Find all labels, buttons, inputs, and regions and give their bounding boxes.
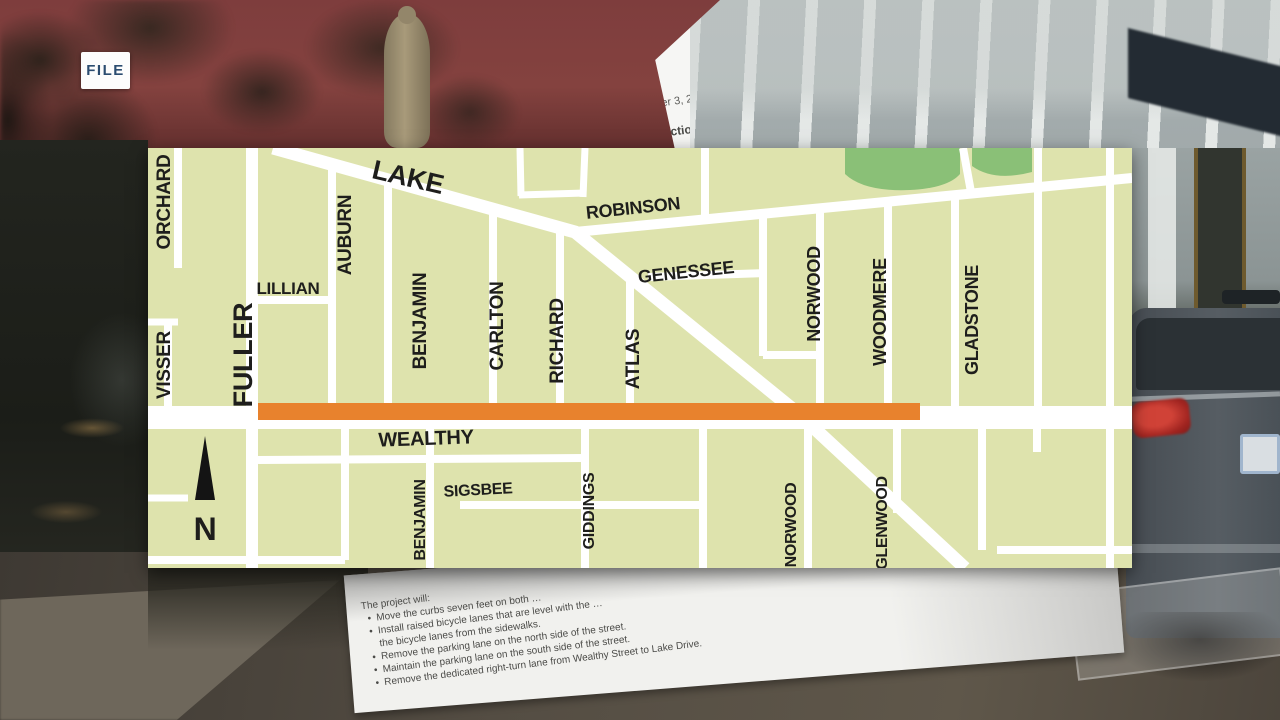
- street-label-woodmere: WOODMERE: [870, 258, 890, 366]
- street-label-genessee: GENESSEE: [637, 257, 735, 287]
- street-label-gladstone: GLADSTONE: [962, 265, 982, 375]
- roof-rack: [1222, 290, 1280, 304]
- street-label-orchard: ORCHARD: [154, 154, 175, 249]
- bullet-icon: •: [370, 676, 385, 691]
- street-map: LAKE ROBINSON GENESSEE ORCHARD VISSER FU…: [148, 148, 1132, 568]
- street-label-lillian: LILLIAN: [256, 279, 319, 298]
- wealthy-highlight-segment: [258, 403, 920, 420]
- file-footage-badge: FILE: [81, 52, 130, 89]
- street-label-visser: VISSER: [154, 330, 175, 398]
- street-label-benjamin-south: BENJAMIN: [412, 479, 429, 560]
- street-label-norwood-south: NORWOOD: [783, 483, 800, 568]
- map-drop-shadow: [148, 566, 368, 650]
- street-label-auburn: AUBURN: [335, 195, 356, 276]
- street-label-benjamin-north: BENJAMIN: [410, 273, 431, 370]
- street-label-giddings: GIDDINGS: [581, 472, 598, 549]
- park-area: [972, 148, 1032, 176]
- street-label-carlton: CARLTON: [487, 281, 508, 370]
- taillight: [1130, 397, 1191, 439]
- north-label: N: [194, 511, 217, 547]
- street-sigsbee: [258, 458, 585, 460]
- street-label-fuller: FULLER: [228, 303, 258, 408]
- street-label-glenwood: GLENWOOD: [874, 476, 891, 568]
- cupola-finial: [384, 14, 430, 148]
- rear-window: [1136, 318, 1280, 390]
- license-plate: [1240, 434, 1280, 474]
- street-label-wealthy: WEALTHY: [378, 426, 475, 451]
- park-area: [845, 148, 960, 190]
- street-label-lake: LAKE: [369, 154, 446, 199]
- street-label-atlas: ATLAS: [623, 329, 644, 389]
- street-label-sigsbee: SIGSBEE: [443, 480, 513, 501]
- street-label-richard: RICHARD: [547, 298, 568, 384]
- street-label-norwood-north: NORWOOD: [804, 246, 824, 342]
- north-arrow-icon: [195, 436, 215, 500]
- news-frame: October 3, 2025 … Division …and Construc…: [0, 0, 1280, 720]
- bumper-trim: [1126, 544, 1280, 553]
